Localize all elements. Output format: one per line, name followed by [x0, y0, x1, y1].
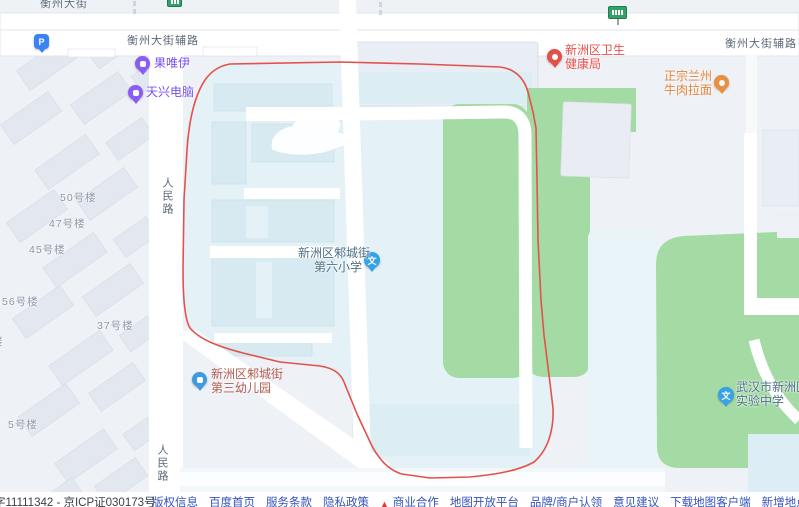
kindergarten-line2: 第三幼儿园	[211, 382, 283, 396]
road-label-hengzhou-street: 衡州大街	[40, 0, 88, 11]
footer-link-add-place[interactable]: 新增地点	[762, 494, 799, 507]
middle-school-line2: 实验中学	[736, 395, 799, 409]
building-label-56: 56号楼	[2, 294, 39, 309]
middle-school-line1: 武汉市新洲区	[736, 381, 799, 395]
road-label-renmin-upper: 人民路	[159, 177, 175, 216]
health-bureau-line1: 新洲区卫生	[565, 44, 625, 58]
footer-link-brand-claim[interactable]: 品牌/商户认领	[530, 494, 602, 507]
bus-stop-icon-partial	[167, 0, 182, 7]
footer-link-privacy[interactable]: 隐私政策	[323, 494, 369, 507]
kindergarten-line1: 新洲区邾城街	[211, 368, 283, 382]
fruit-shop-pin-icon[interactable]	[135, 56, 150, 71]
footer-link-business[interactable]: 商业合作	[393, 494, 439, 507]
middle-school-glyph: 文	[721, 389, 730, 402]
kindergarten-pin-icon[interactable]	[192, 372, 207, 387]
parking-pin-icon[interactable]: P	[34, 34, 49, 49]
primary-school-line1: 新洲区邾城街	[298, 247, 362, 261]
footer-bar: 字11111342 - 京ICP证030173号 版权信息 百度首页 服务条款 …	[0, 492, 799, 507]
renmin-road	[149, 54, 183, 507]
noodle-restaurant-label[interactable]: 正宗兰州 牛肉拉面	[662, 70, 712, 97]
health-bureau-line2: 健康局	[565, 58, 625, 72]
noodle-line1: 正宗兰州	[662, 70, 712, 84]
school-north-building	[350, 42, 538, 106]
campus-path-notch	[256, 262, 272, 318]
road-label-fulu-east: 衡州大街辅路	[725, 35, 797, 51]
noodle-line2: 牛肉拉面	[662, 84, 712, 98]
building-label-partial: 楼	[0, 334, 4, 349]
fruit-shop-label[interactable]: 果唯伊	[154, 57, 190, 71]
building-label-37: 37号楼	[97, 318, 134, 333]
health-bureau-label[interactable]: 新洲区卫生 健康局	[565, 44, 625, 71]
bus-stop-icon[interactable]	[608, 6, 627, 25]
map-canvas[interactable]: 衡州大街 衡州大街辅路 衡州大街辅路 人民路 人民路 50号楼 47号楼 45号…	[0, 0, 799, 507]
noodle-restaurant-pin-icon[interactable]	[714, 75, 729, 90]
road-label-renmin-lower: 人民路	[154, 444, 170, 483]
primary-school-label[interactable]: 新洲区邾城街 第六小学	[298, 247, 362, 274]
building-label-50: 50号楼	[60, 190, 97, 205]
computer-shop-pin-icon[interactable]	[128, 85, 143, 100]
footer-link-copyright[interactable]: 版权信息	[152, 494, 198, 507]
middle-school-label[interactable]: 武汉市新洲区 实验中学	[736, 381, 799, 408]
hot-flame-icon: ▲	[380, 495, 389, 507]
parking-glyph: P	[38, 37, 44, 47]
footer-link-feedback[interactable]: 意见建议	[613, 494, 659, 507]
building-label-5: 5号楼	[8, 417, 38, 432]
footer-link-open-platform[interactable]: 地图开放平台	[450, 494, 519, 507]
footer-link-download-app[interactable]: 下载地图客户端	[670, 494, 751, 507]
health-bureau-pin-icon[interactable]	[547, 49, 562, 64]
road-label-fulu-west: 衡州大街辅路	[127, 32, 199, 48]
building-label-47: 47号楼	[49, 216, 86, 231]
footer-link-terms[interactable]: 服务条款	[266, 494, 312, 507]
kindergarten-label[interactable]: 新洲区邾城街 第三幼儿园	[211, 368, 283, 395]
building-label-45: 45号楼	[29, 242, 66, 257]
middle-school-pin-icon[interactable]: 文	[718, 387, 734, 403]
primary-school-line2: 第六小学	[298, 261, 362, 275]
footer-links: 版权信息 百度首页 服务条款 隐私政策 ▲ 商业合作 地图开放平台 品牌/商户认…	[152, 494, 799, 507]
icp-license-text: 字11111342 - 京ICP证030173号	[0, 494, 156, 507]
computer-shop-label[interactable]: 天兴电脑	[146, 86, 194, 100]
campus-path-notch2	[246, 206, 268, 238]
footer-link-baidu-home[interactable]: 百度首页	[209, 494, 255, 507]
